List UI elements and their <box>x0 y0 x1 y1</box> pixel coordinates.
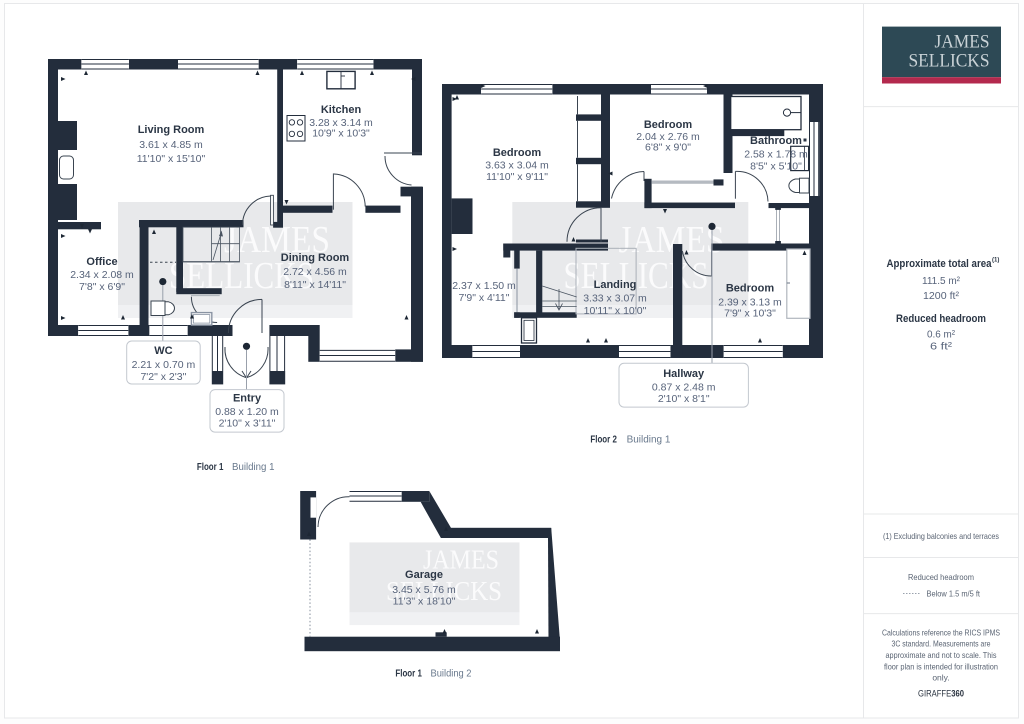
svg-text:7'8" x 6'9": 7'8" x 6'9" <box>79 281 125 293</box>
svg-text:11'10" x 9'11": 11'10" x 9'11" <box>486 171 548 183</box>
svg-text:3.63 x 3.04 m: 3.63 x 3.04 m <box>485 160 549 172</box>
svg-text:2.72 x 4.56 m: 2.72 x 4.56 m <box>283 266 347 278</box>
svg-text:(1): (1) <box>992 258 999 264</box>
svg-text:Living Room: Living Room <box>138 124 205 136</box>
svg-text:Dining Room: Dining Room <box>281 252 350 264</box>
svg-text:Bathroom: Bathroom <box>750 135 802 147</box>
svg-text:Entry: Entry <box>233 393 262 405</box>
svg-text:JAMES: JAMES <box>935 32 990 53</box>
svg-text:Building 2: Building 2 <box>431 668 472 680</box>
svg-text:2.21 x 0.70 m: 2.21 x 0.70 m <box>132 359 196 371</box>
svg-text:0.6 m²: 0.6 m² <box>927 329 955 341</box>
svg-text:3.33 x 3.07 m: 3.33 x 3.07 m <box>583 293 647 305</box>
svg-text:Office: Office <box>86 256 117 268</box>
svg-text:Kitchen: Kitchen <box>321 104 362 116</box>
svg-text:Calculations reference the RIC: Calculations reference the RICS IPMS <box>882 627 1000 637</box>
svg-text:Floor 1: Floor 1 <box>395 668 422 680</box>
svg-text:Approximate total area: Approximate total area <box>887 258 993 270</box>
svg-text:Landing: Landing <box>594 279 637 291</box>
svg-text:3C standard. Measurements are: 3C standard. Measurements are <box>892 639 991 649</box>
svg-text:8'11" x 14'11": 8'11" x 14'11" <box>284 279 346 291</box>
svg-text:10'11" x 10'0": 10'11" x 10'0" <box>584 305 647 317</box>
svg-text:11'10" x 15'10": 11'10" x 15'10" <box>137 153 206 165</box>
svg-text:WC: WC <box>154 345 172 357</box>
svg-text:6 ft²: 6 ft² <box>930 341 953 353</box>
svg-text:10'9" x 10'3": 10'9" x 10'3" <box>312 128 370 140</box>
svg-text:1200 ft²: 1200 ft² <box>923 290 960 302</box>
svg-text:2.58 x 1.78 m: 2.58 x 1.78 m <box>744 149 808 161</box>
svg-text:2'10" x 8'1": 2'10" x 8'1" <box>658 393 710 405</box>
svg-text:3.45 x 5.76 m: 3.45 x 5.76 m <box>392 584 456 596</box>
svg-text:8'5" x 5'10": 8'5" x 5'10" <box>750 161 802 173</box>
svg-text:Garage: Garage <box>405 569 443 581</box>
svg-text:0.88 x 1.20 m: 0.88 x 1.20 m <box>215 406 279 418</box>
svg-text:Reduced headroom: Reduced headroom <box>896 313 986 325</box>
svg-text:7'2" x 2'3": 7'2" x 2'3" <box>140 371 186 383</box>
svg-text:Bedroom: Bedroom <box>726 283 775 295</box>
svg-text:111.5 m²: 111.5 m² <box>922 275 960 287</box>
svg-text:Bedroom: Bedroom <box>493 147 542 159</box>
svg-text:Bedroom: Bedroom <box>644 119 693 131</box>
svg-text:Below 1.5 m/5 ft: Below 1.5 m/5 ft <box>927 589 981 599</box>
svg-text:SELLICKS: SELLICKS <box>909 51 990 72</box>
svg-text:3.61 x 4.85 m: 3.61 x 4.85 m <box>139 139 203 151</box>
svg-text:11'3" x 18'10": 11'3" x 18'10" <box>393 596 456 608</box>
svg-text:Hallway: Hallway <box>663 368 705 380</box>
svg-text:0.87 x 2.48 m: 0.87 x 2.48 m <box>652 382 716 394</box>
svg-text:2'10" x 3'11": 2'10" x 3'11" <box>219 418 276 430</box>
svg-text:2.34 x 2.08 m: 2.34 x 2.08 m <box>70 269 134 281</box>
svg-text:floor plan is intended for ill: floor plan is intended for illustration <box>884 661 998 671</box>
svg-text:(1) Excluding balconies and te: (1) Excluding balconies and terraces <box>883 531 999 541</box>
svg-text:Building 1: Building 1 <box>232 461 275 473</box>
svg-text:2.37 x 1.50 m: 2.37 x 1.50 m <box>452 280 516 292</box>
svg-text:GIRAFFE360: GIRAFFE360 <box>918 689 964 699</box>
svg-text:6'8" x 9'0": 6'8" x 9'0" <box>645 142 691 154</box>
svg-text:approximate and not to scale.: approximate and not to scale. This <box>886 650 997 660</box>
svg-text:Floor 2: Floor 2 <box>590 434 617 446</box>
svg-text:7'9" x 4'11": 7'9" x 4'11" <box>459 292 510 304</box>
svg-text:Reduced headroom: Reduced headroom <box>908 572 974 582</box>
svg-text:7'9" x 10'3": 7'9" x 10'3" <box>724 308 776 320</box>
svg-text:Building 1: Building 1 <box>627 434 671 446</box>
svg-text:Floor 1: Floor 1 <box>197 461 224 473</box>
svg-text:only.: only. <box>932 673 949 683</box>
